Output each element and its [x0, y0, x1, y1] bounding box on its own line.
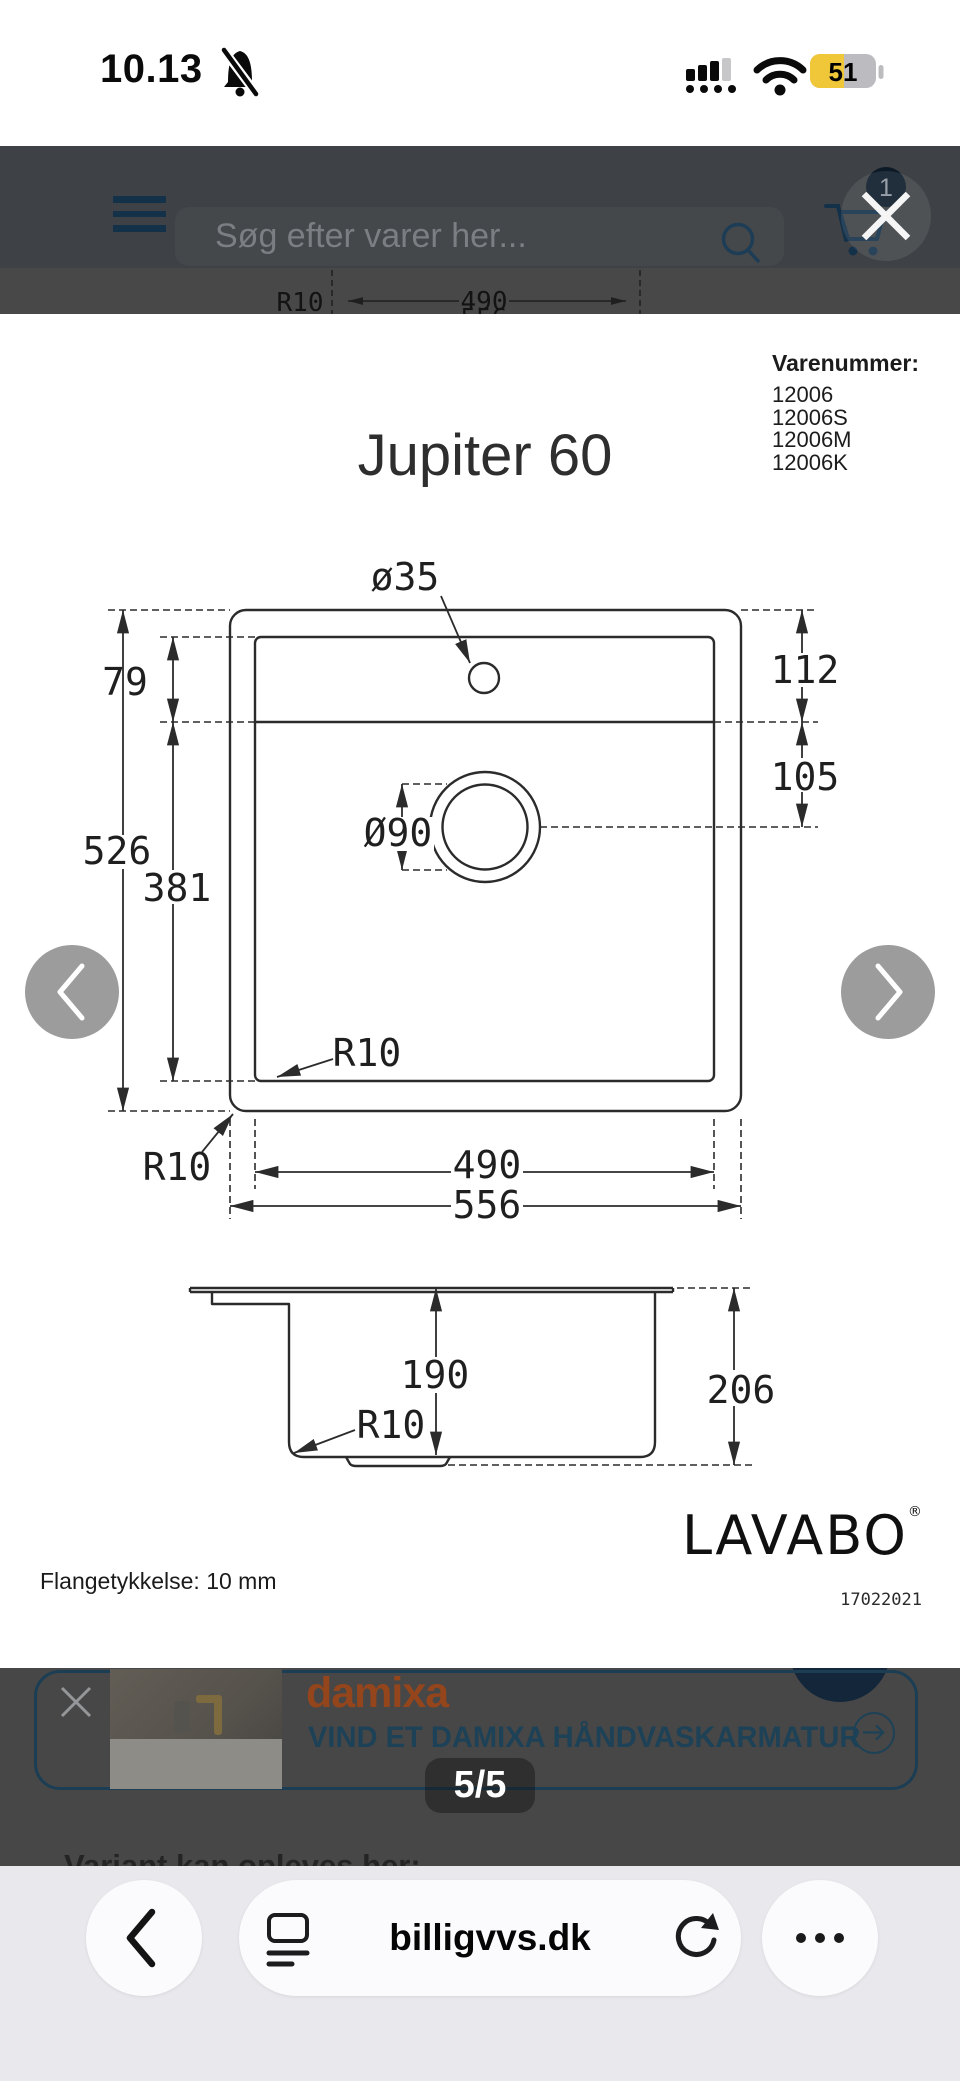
screen: 10.13 51 — [0, 0, 960, 2081]
banner-headline: VIND ET DAMIXA HÅNDVASKARMATUR — [308, 1721, 860, 1755]
registered-mark: ® — [908, 1504, 924, 1520]
dim-radius-bottom: R10 — [357, 1403, 426, 1447]
back-button[interactable] — [86, 1880, 202, 1996]
fragment-556: 556 — [461, 304, 508, 314]
dimmed-page-fragment: R10 490 556 — [0, 268, 960, 314]
shop-header: 1 — [0, 146, 960, 268]
cellular-signal-icon — [680, 50, 740, 94]
sink-bowl-edge — [255, 637, 714, 1081]
dim-tap-hole: ø35 — [371, 555, 440, 599]
dimmed-page-bottom: damixa VIND ET DAMIXA HÅNDVASKARMATUR 5/… — [0, 1668, 960, 1866]
search-icon[interactable] — [717, 219, 767, 269]
dim-depth-outer: 206 — [707, 1368, 776, 1412]
dim-inner-width: 490 — [453, 1143, 522, 1187]
ellipsis-icon — [762, 1880, 878, 1996]
bell-muted-icon — [216, 44, 264, 100]
dim-radius-inner: R10 — [333, 1031, 402, 1075]
dim-outer-width: 556 — [453, 1183, 522, 1227]
battery-icon: 51 — [810, 52, 884, 92]
status-bar: 10.13 51 — [0, 0, 960, 146]
dim-deck-depth: 79 — [102, 660, 148, 704]
chevron-right-icon — [841, 945, 935, 1039]
dim-inner-height: 381 — [143, 866, 212, 910]
dim-depth-inner: 190 — [401, 1353, 470, 1397]
address-bar[interactable]: billigvvs.dk — [239, 1880, 741, 1996]
clock: 10.13 — [100, 47, 203, 92]
back-chevron-icon — [86, 1880, 202, 1996]
reload-icon[interactable] — [667, 1909, 725, 1967]
next-image-button[interactable] — [841, 945, 935, 1039]
doc-number: 17022021 — [840, 1590, 922, 1610]
banner-close-icon[interactable] — [56, 1682, 96, 1722]
lightbox-close-button[interactable] — [841, 171, 931, 261]
technical-drawing: ø35 79 112 105 Ø90 526 381 R10 R10 490 5… — [0, 314, 960, 1668]
fragment-r10: R10 — [277, 288, 324, 314]
dim-right-lower: 105 — [771, 755, 840, 799]
battery-percent: 51 — [829, 57, 858, 87]
damixa-logo: damixa — [306, 1669, 448, 1718]
browser-toolbar: billigvvs.dk — [0, 1866, 960, 2081]
lavabo-logo: LAVABO® — [682, 1504, 932, 1567]
dim-outer-height: 526 — [83, 829, 152, 873]
more-button[interactable] — [762, 1880, 878, 1996]
variant-heading: Variant kan opleves her: — [64, 1848, 421, 1866]
close-icon — [841, 171, 931, 261]
banner-photo — [110, 1669, 282, 1789]
flange-note: Flangetykkelse: 10 mm — [40, 1568, 276, 1595]
url-text: billigvvs.dk — [239, 1880, 741, 1996]
tap-hole — [469, 663, 499, 693]
dim-drain: Ø90 — [364, 811, 433, 855]
dim-right-upper: 112 — [771, 648, 840, 692]
sink-outer-edge — [230, 610, 741, 1111]
arrow-right-icon — [855, 1714, 892, 1751]
chevron-left-icon — [25, 945, 119, 1039]
search-input[interactable] — [215, 207, 715, 266]
hamburger-menu-button[interactable] — [113, 196, 166, 232]
wifi-icon — [752, 52, 808, 96]
dim-radius-outer: R10 — [143, 1145, 212, 1189]
search-field[interactable] — [175, 207, 784, 266]
image-counter-badge: 5/5 — [425, 1758, 535, 1813]
lightbox-image-sheet: Varenummer: 12006 12006S 12006M 12006K J… — [0, 314, 960, 1668]
drain-inner — [443, 785, 528, 870]
drain-outer — [430, 772, 540, 882]
banner-arrow-button[interactable] — [853, 1712, 895, 1754]
prev-image-button[interactable] — [25, 945, 119, 1039]
